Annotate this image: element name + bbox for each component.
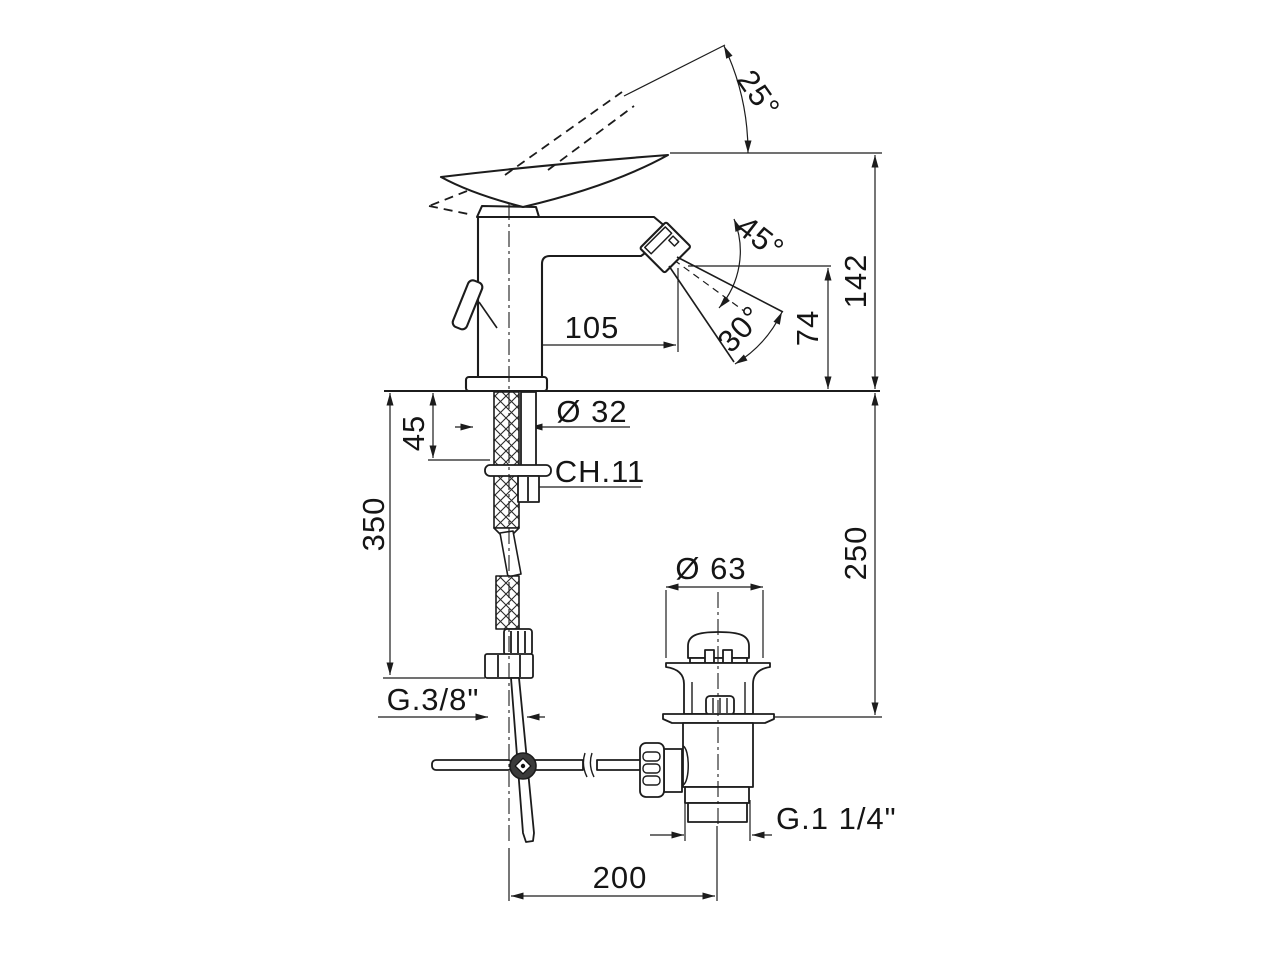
- dim-label-45deg: 45°: [730, 209, 791, 267]
- dim-label-dia32: Ø 32: [556, 394, 627, 429]
- handle-collar: [477, 206, 539, 217]
- dim-label-350: 350: [356, 497, 391, 552]
- rod-pivot: [510, 753, 536, 779]
- base-flange: [466, 377, 547, 391]
- waste-thread-ring: [685, 787, 749, 803]
- dim-label-74: 74: [790, 310, 825, 346]
- dim-label-45: 45: [396, 415, 431, 451]
- technical-drawing-page: 25° 45° 30° 142 74 105 Ø 32 45 CH.11 350…: [0, 0, 1280, 960]
- dim-label-25deg: 25°: [730, 64, 787, 125]
- actuating-rod: [432, 753, 642, 777]
- dim-label-200: 200: [593, 860, 648, 895]
- dim-label-dia63: Ø 63: [675, 551, 746, 586]
- dim-label-ch11: CH.11: [555, 454, 646, 489]
- dim-label-g114: G.1 1/4": [776, 801, 897, 836]
- dim-label-g38: G.3/8": [387, 682, 480, 717]
- pop-up-waste: [640, 632, 774, 822]
- faucet-body: [478, 217, 673, 378]
- dim-label-105: 105: [565, 310, 620, 345]
- bidet-mixer-dimension-drawing: 25° 45° 30° 142 74 105 Ø 32 45 CH.11 350…: [0, 0, 1280, 960]
- lever-handle: [441, 155, 668, 207]
- dim-label-142: 142: [838, 254, 873, 309]
- flex-hose-lower: [496, 576, 519, 629]
- dim-label-250: 250: [838, 526, 873, 581]
- flex-hose-upper: [494, 392, 521, 577]
